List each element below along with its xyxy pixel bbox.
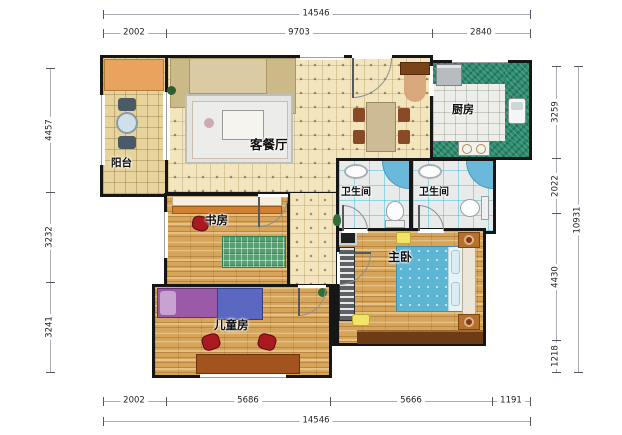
wall-patch: [330, 284, 339, 346]
bath1-sink: [344, 164, 368, 179]
nightstand-lamp: [464, 235, 474, 245]
balcony-chair: [118, 136, 136, 149]
label-balcony: 阳台: [111, 158, 132, 169]
rug-flower-motif: [204, 118, 214, 128]
master-door-leaf: [339, 252, 371, 254]
tv-unit: [339, 231, 357, 245]
dim-bottom-seg2: 5666: [397, 396, 425, 405]
dim-right-seg3: 1218: [551, 343, 560, 369]
study-door-leaf: [258, 197, 260, 227]
label-study: 书房: [205, 215, 228, 227]
dining-table: [366, 102, 396, 152]
dim-bottom-total: 14546: [299, 416, 332, 425]
dim-top-seg1: 9703: [285, 28, 313, 37]
hallway: [287, 193, 339, 290]
fridge: [436, 64, 462, 86]
dim-bottom-seg3: 1191: [497, 396, 525, 405]
kids-bed-pillow: [160, 291, 176, 315]
floor-plan-canvas: 客餐厅 厨房 卫生间 卫生间 主卧 书房 儿童房 阳台 14546 2002 9…: [0, 0, 622, 435]
dim-left-seg2: 3241: [45, 314, 54, 340]
balcony-cabinet: [104, 59, 164, 91]
headboard: [462, 240, 476, 318]
dining-chair: [398, 108, 410, 122]
kitchen-sink-basin: [511, 102, 523, 110]
nightstand-lamp: [464, 317, 474, 327]
dim-right-seg0: 3259: [551, 99, 560, 125]
label-bath1: 卫生间: [341, 188, 371, 198]
dim-left-seg0: 4457: [45, 117, 54, 143]
plant: [333, 214, 341, 226]
kids-door-opening: [298, 285, 326, 288]
kids-door-leaf: [298, 288, 300, 316]
balcony-chair: [118, 98, 136, 111]
label-bath2: 卫生间: [419, 188, 449, 198]
stove-burner: [462, 144, 472, 154]
stove-burner: [476, 144, 486, 154]
label-kids: 儿童房: [214, 320, 249, 332]
study-rug: [222, 236, 286, 268]
dim-top-total: 14546: [299, 9, 332, 18]
bath1-door-leaf: [342, 205, 344, 231]
stool-yellow: [352, 314, 370, 326]
bath2-toilet-bowl: [460, 199, 480, 217]
study-door-opening: [258, 194, 288, 197]
coffee-table: [222, 110, 264, 140]
dining-chair: [353, 108, 365, 122]
dim-bottom-seg1: 5686: [234, 396, 262, 405]
bath2-toilet-tank: [481, 196, 489, 220]
kids-bed-blue: [217, 288, 263, 320]
pillow: [451, 282, 460, 306]
plant: [167, 86, 176, 95]
bath2-door-leaf: [418, 205, 420, 231]
entry-mat: [404, 75, 426, 102]
label-living: 客餐厅: [250, 139, 288, 152]
bath1-toilet-bowl: [386, 201, 404, 221]
stool-yellow: [396, 232, 411, 244]
label-master: 主卧: [388, 251, 412, 263]
kids-desk: [196, 354, 300, 374]
dim-right-seg1: 2022: [551, 173, 560, 199]
bath2-sink: [418, 164, 442, 179]
dining-chair: [398, 130, 410, 144]
dim-left-seg1: 3232: [45, 224, 54, 250]
dim-top-seg2: 2840: [467, 28, 495, 37]
dim-bottom-seg-line: [103, 401, 530, 402]
entry-door-leaf: [352, 58, 354, 98]
master-dresser: [357, 330, 483, 344]
dim-top-seg-line: [103, 33, 530, 34]
dim-right-seg2: 4430: [551, 264, 560, 290]
dim-right-total: 10931: [573, 204, 582, 235]
dim-top-seg0: 2002: [120, 28, 148, 37]
dim-bottom-seg0: 2002: [120, 396, 148, 405]
balcony-table: [116, 112, 138, 134]
dining-chair: [353, 130, 365, 144]
entry-cabinet: [400, 62, 430, 75]
bath1-toilet-tank: [385, 220, 405, 228]
pillow: [451, 250, 460, 274]
label-kitchen: 厨房: [452, 104, 474, 115]
